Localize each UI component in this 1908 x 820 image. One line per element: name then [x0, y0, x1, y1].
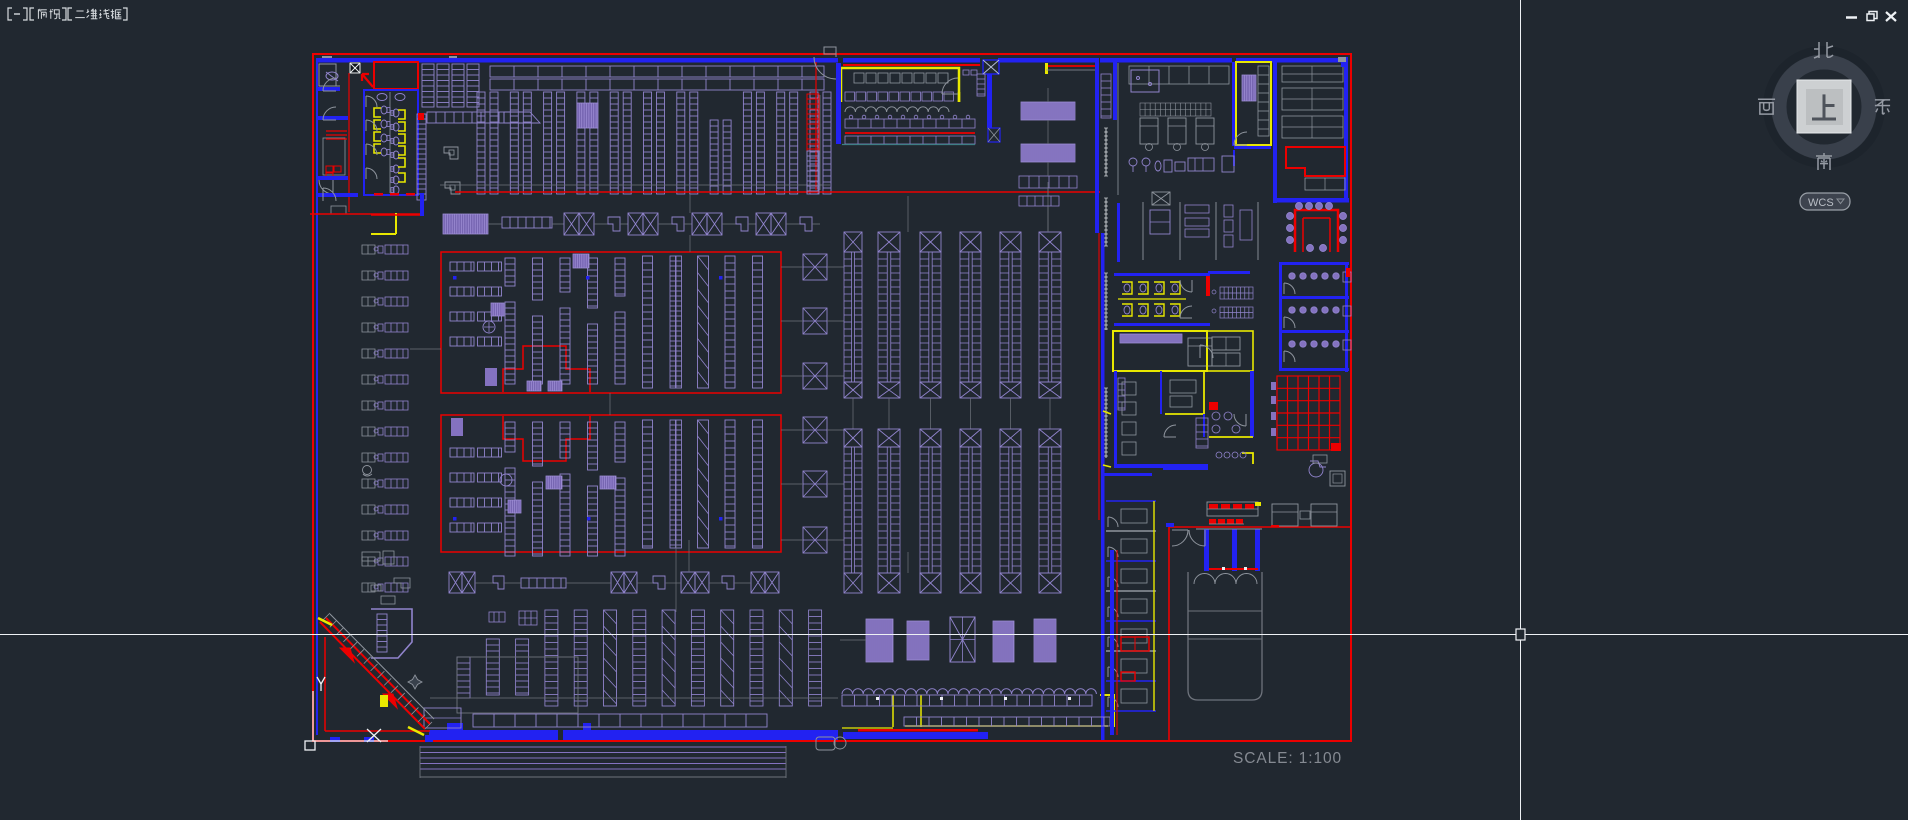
- svg-text:WCS: WCS: [1808, 197, 1834, 209]
- svg-text:SCALE: 1:100: SCALE: 1:100: [1233, 750, 1342, 767]
